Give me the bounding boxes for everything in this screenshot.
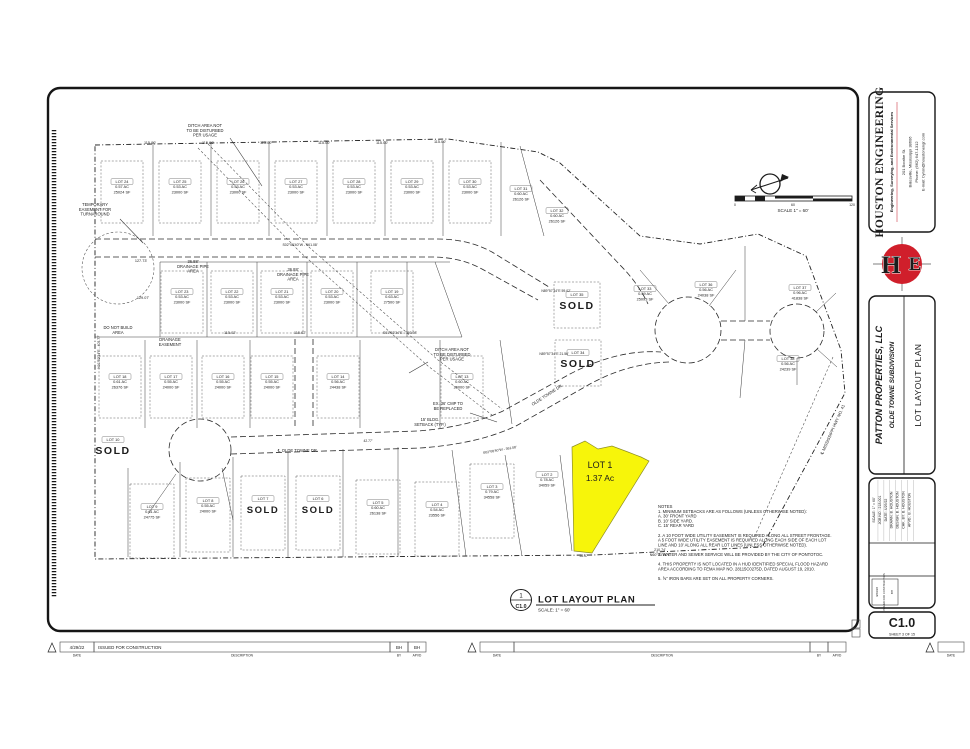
north-arrow	[751, 174, 789, 194]
annotation-text: SETBACK (TYP.)	[414, 422, 446, 427]
dimension-text: S02°08'40"W - 361.08'	[483, 445, 518, 455]
revision-apvd: BH	[414, 645, 420, 650]
scale-tick-120: 120	[849, 203, 855, 207]
dimension-text: 115.02'	[294, 331, 306, 335]
sheet-title: LOT LAYOUT PLAN	[913, 344, 923, 427]
leader-line	[409, 362, 428, 373]
lot-label: 24000 SF	[200, 508, 217, 513]
dimension-text: 58.57'	[580, 554, 589, 558]
annotation-text: AREA	[187, 269, 198, 274]
dimension-text: 129.07'	[137, 296, 150, 300]
scale-bar: 0 60 120 SCALE 1" = 60'	[734, 196, 855, 213]
dimension-text: N01°52'34"E - 405.77'	[97, 335, 101, 369]
cul-de-sac-southwest	[169, 419, 231, 481]
subdivision-name: OLDE TOWNE SUBDIVISION	[889, 341, 896, 428]
dimension-text: 42.77'	[364, 439, 373, 443]
lot-label: 24000 SF	[215, 384, 232, 389]
lot-label: 25024 SF	[114, 189, 131, 194]
logo-letter-h: H	[881, 252, 901, 279]
mini-revision-by: BH	[890, 590, 894, 594]
lot-1-label: LOT 1	[588, 460, 613, 470]
revision-description-label: DESCRIPTION	[651, 654, 673, 658]
lot-label: 34558 SF	[484, 494, 501, 499]
firm-address-2: Batesville, Mississippi 38606	[908, 136, 913, 188]
client-name: PATTON PROPERTIES, LLC	[874, 325, 884, 444]
lot-label: 23000 SF	[346, 189, 363, 194]
sold-label: SOLD	[302, 505, 334, 516]
lot-label: 23000 SF	[274, 299, 291, 304]
lot-label: 23000 SF	[462, 189, 479, 194]
note-line: LINE AND 10' ALONG ALL REAR LOT LINES (U…	[658, 542, 807, 547]
revision-description: ISSUED FOR CONSTRUCTION	[98, 645, 161, 650]
annotation-text: AREA	[112, 330, 123, 335]
titleblock-firm: HOUSTON ENGINEERING Engineering, Surveyi…	[869, 87, 935, 238]
info-row: DRAWN: B. HOUSTON	[890, 491, 894, 528]
info-row: DESIGN: B. HOUSTON	[896, 491, 900, 529]
lot-label: 24038 SF	[698, 292, 715, 297]
ditch-lines	[198, 144, 833, 538]
lot-label: 24000 SF	[163, 384, 180, 389]
plan-scale: SCALE: 1" = 60'	[538, 608, 570, 613]
sold-label: SOLD	[559, 300, 594, 312]
info-row: SCALE: 1" = 60'	[872, 497, 876, 522]
dimension-text: N89°57'34"E 21.56'	[539, 352, 569, 356]
sold-label: SOLD	[95, 445, 130, 457]
lot-label: 26126 SF	[549, 218, 566, 223]
cul-de-sac-east	[655, 297, 721, 363]
revision-apvd-box	[828, 642, 846, 652]
lot-label: 24239 SF	[780, 366, 797, 371]
revision-by-label: BY	[817, 654, 822, 658]
lot-label: 23556 SF	[429, 512, 446, 517]
lot-label: LOT 34	[572, 350, 586, 355]
sold-label: SOLD	[247, 505, 279, 516]
cul-de-sac-far-east	[770, 304, 824, 358]
revision-delta-icon	[468, 643, 476, 652]
lot-setback-box	[130, 484, 174, 558]
sold-label: SOLD	[560, 358, 595, 370]
setback-boxes	[99, 161, 601, 558]
dimension-text: N89°57'34"E 59.02'	[541, 289, 571, 293]
info-row: APVD.: B. HOUSTON	[907, 492, 911, 527]
firm-address-1: 201 Boothe St.	[901, 149, 906, 175]
lot-label: LOT 6	[313, 496, 324, 501]
note-line: AREA ACCORDING TO FEMA MAP NO. 28115C027…	[658, 566, 815, 571]
revision-date-box	[938, 642, 964, 652]
sheet-code: C1.0	[889, 616, 915, 630]
lot-label: 25093 SF	[637, 296, 654, 301]
lot-label: 24438 SF	[330, 384, 347, 389]
firm-logo: H E	[873, 237, 931, 291]
annotation-text: AREA	[287, 277, 298, 282]
revision-date-label: DATE	[493, 654, 501, 658]
lot-label: LOT 7	[258, 496, 269, 501]
dimension-text: S02°08'40"W - 561.08'	[282, 243, 317, 247]
scale-tick-0: 0	[734, 203, 736, 207]
lot-setback-box	[356, 480, 400, 554]
revision-apvd-label: APVD	[833, 654, 842, 658]
note-line: 3. WATER AND SEWER SERVICE WILL BE PROVI…	[658, 552, 823, 557]
firm-name: HOUSTON ENGINEERING	[874, 87, 886, 238]
sheet-caption: SHEET 3 OF 15	[889, 633, 915, 637]
revision-apvd-label: APVD	[413, 654, 422, 658]
lot-1-highlight	[572, 441, 649, 553]
revision-by-box	[810, 642, 828, 652]
lot-label: LOT 10	[107, 437, 121, 442]
lot-label: 23000 SF	[224, 299, 241, 304]
dimension-text: ℄ MISSISSIPPI HWY NO. 41	[819, 403, 846, 456]
lot-label: 23000 SF	[230, 189, 247, 194]
note-line: C. 15' REAR YARD	[658, 523, 694, 528]
revision-strip: 4/29/22ISSUED FOR CONSTRUCTIONBHBHDATEDE…	[48, 642, 964, 658]
annotation-notes: DITCH AREA NOTTO BE DISTURBEDPER USAGETE…	[79, 123, 497, 427]
scale-tick-60: 60	[791, 203, 795, 207]
revision-date-box	[480, 642, 514, 652]
lot-setback-box	[415, 482, 459, 556]
lot-label: 34059 SF	[539, 482, 556, 487]
revision-by-label: BY	[397, 654, 402, 658]
lot-label: 27500 SF	[384, 299, 401, 304]
lot-label: 41838 SF	[792, 295, 809, 300]
dimension-text: 115.00'	[202, 141, 214, 145]
lot-label: 23000 SF	[404, 189, 421, 194]
revision-description-label: DESCRIPTION	[231, 654, 253, 658]
revision-delta-icon	[48, 643, 56, 652]
lot-label: 26126 SF	[513, 196, 530, 201]
firm-phone: Phone: (662) 647-1312	[914, 141, 919, 183]
info-row: DATE: 4/29/22	[884, 499, 888, 522]
lot-label: 24000 SF	[264, 384, 281, 389]
titleblock-sheetnumber: C1.0 SHEET 3 OF 15	[869, 612, 935, 638]
info-row: CHK. BY: B. HOUSTON	[902, 491, 906, 529]
callout-sheet-ref: C1.0	[516, 604, 527, 610]
revision-date-label: DATE	[947, 654, 955, 658]
detail-callout: 1 C1.0 LOT LAYOUT PLAN SCALE: 1" = 60'	[511, 590, 656, 613]
cross-street	[295, 339, 313, 429]
info-row: JOB NO.: 218-001	[878, 496, 882, 525]
lot-label: LOT 35	[571, 292, 584, 297]
logo-letter-e: E	[909, 254, 922, 275]
dimension-text: 115.00'	[144, 141, 156, 145]
lot-label: 23000 SF	[324, 299, 341, 304]
lot-label: 23000 SF	[288, 189, 305, 194]
scale-bar-label: SCALE 1" = 60'	[777, 208, 808, 213]
info-table: SCALE: 1" = 60'JOB NO.: 218-001DATE: 4/2…	[872, 480, 913, 611]
revision-date: 4/29/22	[70, 645, 85, 650]
dimension-text: 115.00'	[376, 141, 388, 145]
annotation-text: EASEMENT	[159, 342, 182, 347]
dimension-text: ℄ OLDE TOWNE DR.	[277, 448, 318, 453]
dimension-text: 115.00'	[434, 140, 446, 144]
callout-detail-number: 1	[519, 594, 523, 600]
mini-revision-date: 4/29/22	[875, 587, 879, 598]
annotation-text: TURNAROUND	[80, 212, 109, 217]
turnaround-easement-circle	[82, 232, 154, 304]
dimension-text: 127.73'	[135, 259, 148, 263]
lot-label: 26376 SF	[112, 384, 129, 389]
annotation-text: PER USAGE	[440, 357, 464, 362]
lot-setback-box	[470, 464, 514, 538]
revision-date-label: DATE	[73, 654, 81, 658]
revision-delta-icon	[926, 643, 934, 652]
drawing-canvas: LOT 240.57 AC25024 SFLOT 250.53 AC23000 …	[0, 0, 970, 749]
annotation-text: BE REPLACED	[434, 406, 463, 411]
leader-line	[470, 413, 497, 422]
lot-1-acreage: 1.37 Ac	[586, 473, 615, 483]
general-notes: NOTES1. MINIMUM SETBACKS ARE AS FOLLOWS …	[658, 504, 832, 581]
lot-label: 23000 SF	[174, 299, 191, 304]
firm-tagline: Engineering, Surveying, and Environmenta…	[889, 111, 894, 212]
annotation-text: PER USAGE	[193, 133, 217, 138]
note-line: 5. ⅝" IRON BARS ARE SET ON ALL PROPERTY …	[658, 576, 774, 581]
lot-label: 23000 SF	[172, 189, 189, 194]
firm-email: E-mail: byron@houstonengr.com	[921, 132, 926, 191]
dimension-text: 115.00'	[318, 141, 330, 145]
lot-setback-box	[186, 478, 230, 552]
dimension-text: S01°52'34"E - 793.98'	[383, 331, 417, 335]
dimension-text: 115.02'	[224, 331, 236, 335]
revision-description-box	[514, 642, 810, 652]
lot-label: 24775 SF	[144, 514, 161, 519]
dimension-text: 115.00'	[260, 141, 272, 145]
plan-sheet: LOT 240.57 AC25024 SFLOT 250.53 AC23000 …	[0, 0, 970, 749]
lot-label: 26000 SF	[454, 384, 471, 389]
titleblock-project: PATTON PROPERTIES, LLC OLDE TOWNE SUBDIV…	[869, 296, 935, 474]
lot-label: 26138 SF	[370, 510, 387, 515]
plan-title: LOT LAYOUT PLAN	[538, 595, 635, 606]
revision-by: BH	[396, 645, 402, 650]
